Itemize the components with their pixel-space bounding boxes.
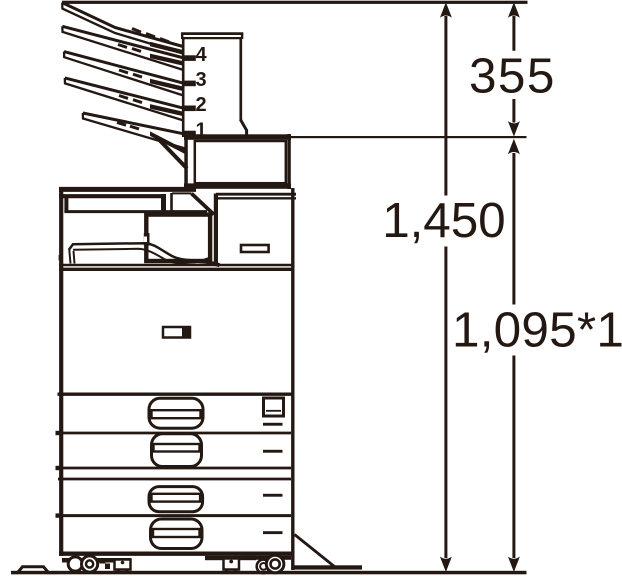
svg-text:355: 355 xyxy=(469,48,556,103)
svg-text:3: 3 xyxy=(196,69,207,91)
svg-text:1,450: 1,450 xyxy=(382,193,505,248)
svg-text:4: 4 xyxy=(196,44,208,66)
svg-text:1,095*1: 1,095*1 xyxy=(452,302,622,357)
svg-text:2: 2 xyxy=(196,94,207,116)
